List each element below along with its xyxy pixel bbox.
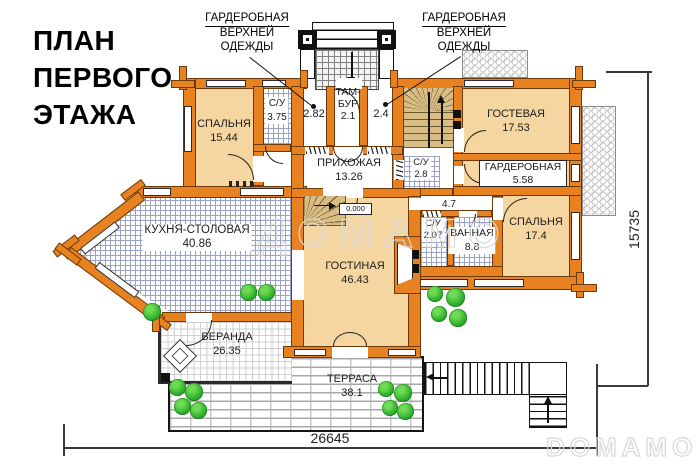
folding-door: [368, 147, 390, 154]
window: [206, 80, 246, 87]
room-label-veranda: ВЕРАНДА26.35: [201, 331, 252, 358]
stair-arrow-head: [329, 202, 336, 210]
flue-block: [453, 121, 461, 129]
porch-column-dot: [306, 38, 309, 41]
plant: [185, 383, 203, 401]
dimension-tick: [596, 385, 648, 387]
stair-arrow: [441, 102, 443, 144]
stair-arrow-head: [426, 373, 434, 381]
window: [571, 106, 580, 144]
dimension-height: 15735: [626, 210, 642, 249]
veranda-post: [161, 373, 170, 382]
wall: [326, 86, 335, 146]
patio-paving-right: [582, 106, 616, 216]
room-label-wardrobe: ГАРДЕРОБНАЯ5.58: [485, 161, 561, 186]
room-label-hallway: ПРИХОЖАЯ13.26: [317, 157, 381, 184]
watermark-corner: DOMAMO: [546, 432, 697, 463]
page-title: ПЛАН ПЕРВОГО ЭТАЖА: [33, 22, 173, 133]
room-label-tambour: ТАМ-БУР2.1: [335, 86, 360, 122]
plant: [427, 286, 443, 302]
folding-door: [306, 147, 328, 154]
annotation-wardrobe-right: ГАРДЕРОБНАЯ ВЕРХНЕЙ ОДЕЖДЫ: [422, 12, 506, 54]
window: [184, 106, 192, 152]
plant: [382, 400, 398, 416]
stair-arrow: [432, 377, 448, 379]
window: [571, 212, 580, 260]
exterior-stair-flight: [424, 362, 530, 395]
leader-dot: [383, 102, 388, 107]
fireplace-flue: [413, 264, 419, 273]
annotation-wardrobe-left: ГАРДЕРОБНАЯ ВЕРХНЕЙ ОДЕЖДЫ: [205, 12, 289, 54]
wall: [390, 70, 398, 88]
patio-paving-top: [462, 50, 528, 78]
room-label-wardrobe-b: 2.4: [373, 108, 388, 122]
log-end: [571, 284, 597, 292]
door-opening: [253, 156, 265, 182]
room-label-terrace: ТЕРРАСА38.1: [327, 373, 377, 400]
exterior-stair-landing: [529, 362, 567, 395]
wall: [392, 86, 404, 198]
watermark-center: ДОМАМО: [258, 212, 510, 257]
window: [388, 349, 416, 356]
plant: [397, 403, 414, 420]
room-label-wc-2: С/У2.8: [411, 157, 431, 180]
window: [143, 188, 171, 196]
room-label-bedroom-2: СПАЛЬНЯ17.4: [509, 216, 563, 243]
plant: [446, 288, 465, 307]
window: [474, 279, 524, 287]
door-opening: [454, 128, 464, 152]
wall: [300, 70, 308, 88]
window: [294, 349, 326, 356]
room-label-wc-1: С/У3.75: [265, 97, 288, 124]
window: [240, 188, 284, 196]
window: [418, 279, 468, 287]
plant: [394, 384, 412, 402]
room-label-guest: ГОСТЕВАЯ17.53: [487, 108, 545, 135]
window: [464, 80, 514, 87]
dimension-line-bottom: [64, 447, 597, 449]
plant: [190, 402, 207, 419]
room-label-bedroom-1: СПАЛЬНЯ15.44: [197, 118, 251, 145]
door-arc: [265, 146, 283, 164]
door-opening: [454, 166, 464, 184]
door-opening: [332, 347, 368, 358]
dimension-line-right: [647, 72, 649, 386]
floor-plan: ПЛАН ПЕРВОГО ЭТАЖА: [0, 0, 700, 466]
porch-column-dot: [385, 38, 388, 41]
wall: [162, 312, 292, 322]
closet-symbol: [229, 181, 256, 187]
window: [571, 164, 580, 182]
plant: [174, 398, 191, 415]
stair-arrow-head: [544, 396, 552, 404]
log-end: [171, 80, 195, 88]
dimension-width: 26645: [311, 430, 350, 446]
room-label-corridor: 4.7: [442, 198, 456, 212]
plant: [449, 309, 467, 327]
room-label-kitchen: КУХНЯ-СТОЛОВАЯ40.86: [142, 224, 251, 251]
plant: [143, 303, 161, 321]
plant: [258, 284, 275, 301]
plant: [240, 284, 257, 301]
stair-divider: [428, 92, 430, 148]
log-end: [572, 80, 596, 88]
door-opening: [409, 198, 421, 210]
room-label-living: ГОСТИНАЯ46.43: [325, 260, 384, 287]
stair-arrow: [314, 205, 330, 206]
plant: [431, 306, 447, 322]
wide-opening: [292, 250, 304, 300]
dimension-tick: [606, 71, 652, 73]
wall: [453, 186, 582, 196]
stair-arrow-head: [437, 95, 445, 103]
room-label-wardrobe-a: 2.82: [303, 108, 324, 122]
entry-arrow: [351, 52, 353, 78]
folding-door: [396, 160, 403, 180]
dimension-tick: [63, 424, 65, 456]
stair-arrow: [547, 403, 549, 423]
flue-block: [453, 110, 461, 118]
plant: [378, 381, 394, 397]
plant: [169, 379, 186, 396]
